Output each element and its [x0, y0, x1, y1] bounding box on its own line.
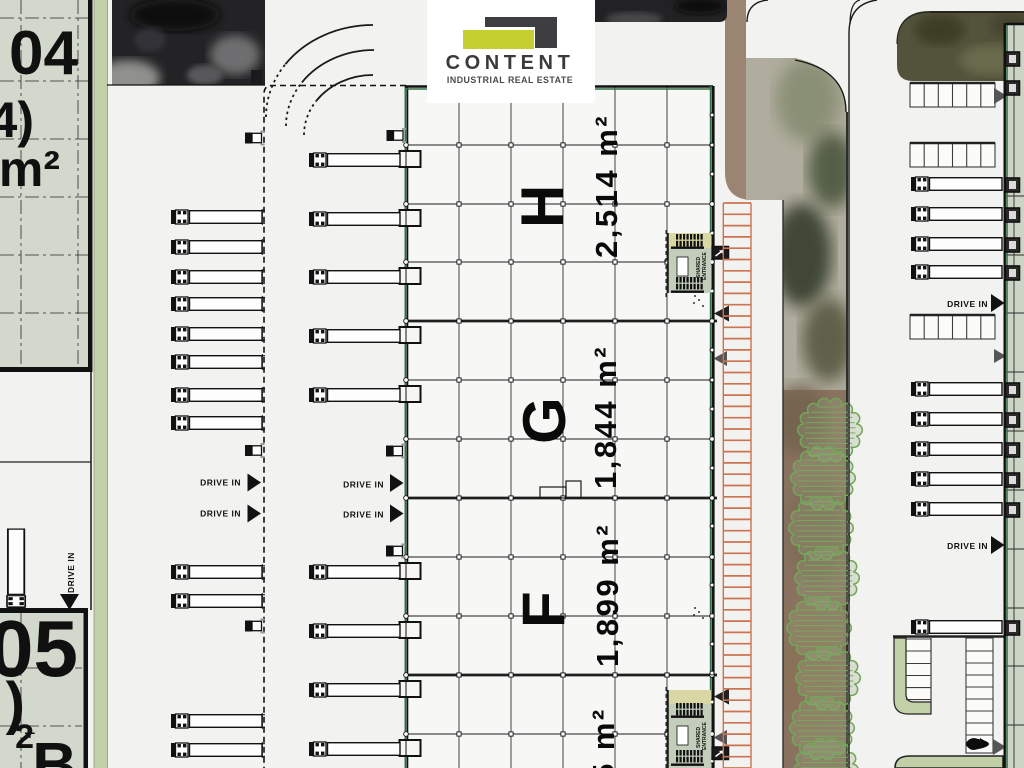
svg-text:G: G — [511, 397, 578, 444]
svg-text:DRIVE IN: DRIVE IN — [947, 541, 988, 551]
svg-text:2,514 m²: 2,514 m² — [589, 114, 624, 258]
svg-text:B: B — [32, 731, 77, 768]
svg-text:04: 04 — [9, 19, 78, 88]
svg-text:F: F — [510, 591, 577, 628]
svg-text:5 m²: 5 m² — [586, 707, 621, 768]
svg-text:DRIVE IN: DRIVE IN — [200, 509, 241, 519]
svg-text:ENTRANCE: ENTRANCE — [702, 252, 708, 280]
svg-text:DRIVE IN: DRIVE IN — [343, 480, 384, 490]
svg-text:1,899 m²: 1,899 m² — [590, 523, 625, 667]
svg-text:DRIVE IN: DRIVE IN — [343, 510, 384, 520]
svg-text:4): 4) — [0, 92, 34, 148]
svg-text:DRIVE IN: DRIVE IN — [66, 552, 76, 593]
svg-text:1,844 m²: 1,844 m² — [588, 345, 623, 489]
svg-text:DRIVE IN: DRIVE IN — [200, 478, 241, 488]
svg-text:H: H — [509, 185, 576, 228]
svg-text:INDUSTRIAL REAL ESTATE: INDUSTRIAL REAL ESTATE — [447, 75, 573, 85]
svg-text:ENTRANCE: ENTRANCE — [702, 722, 708, 750]
svg-text:DRIVE IN: DRIVE IN — [947, 299, 988, 309]
svg-text:CONTENT: CONTENT — [446, 52, 575, 74]
svg-text:m²: m² — [0, 141, 60, 197]
svg-text:+: + — [24, 723, 36, 745]
